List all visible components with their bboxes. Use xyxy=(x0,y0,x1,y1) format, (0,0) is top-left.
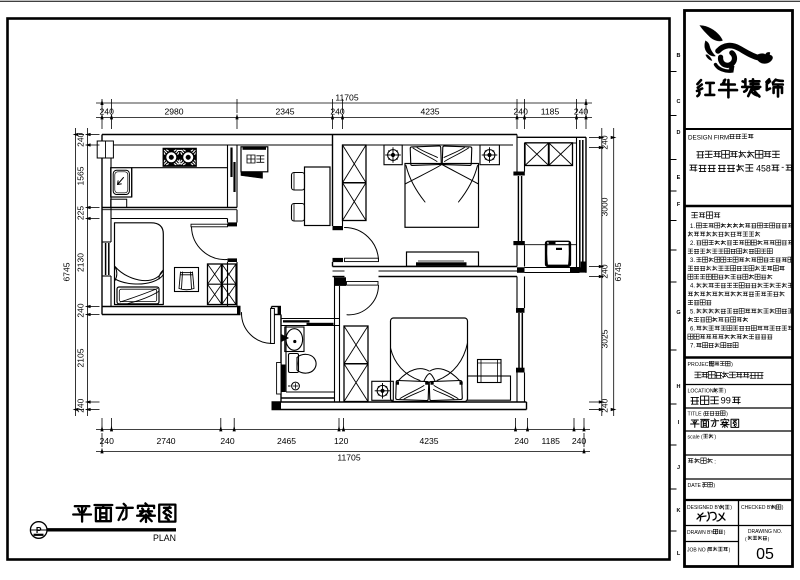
svg-text:6745: 6745 xyxy=(62,262,72,281)
svg-text:J: J xyxy=(677,465,680,471)
svg-text:3.: 3. xyxy=(690,258,695,264)
svg-text:6745: 6745 xyxy=(613,262,623,281)
svg-text:DESIGN FIRM: DESIGN FIRM xyxy=(688,135,729,142)
svg-text:6.: 6. xyxy=(690,326,695,332)
svg-text:240: 240 xyxy=(100,107,115,117)
svg-text:B: B xyxy=(677,53,681,59)
svg-text:3000: 3000 xyxy=(600,197,610,216)
svg-text:05: 05 xyxy=(756,546,774,563)
svg-text:): ) xyxy=(714,435,716,441)
svg-text:): ) xyxy=(713,483,715,489)
svg-text:2130: 2130 xyxy=(76,253,86,272)
svg-text:240: 240 xyxy=(76,303,86,317)
svg-text:D: D xyxy=(677,130,681,136)
svg-text:458: 458 xyxy=(756,164,771,174)
svg-text:G: G xyxy=(676,310,680,316)
svg-text:1565: 1565 xyxy=(76,166,86,185)
svg-text:7.: 7. xyxy=(690,344,695,350)
svg-text:3025: 3025 xyxy=(600,329,610,348)
svg-text:-: - xyxy=(781,162,784,172)
svg-text:4.: 4. xyxy=(690,284,695,290)
svg-text:E: E xyxy=(677,175,681,181)
svg-text:): ) xyxy=(724,389,726,395)
svg-text:DRAWN BY (: DRAWN BY ( xyxy=(687,530,717,536)
svg-text:225: 225 xyxy=(76,206,86,220)
svg-text:): ) xyxy=(726,412,728,418)
svg-text:1185: 1185 xyxy=(541,436,560,446)
svg-text:4235: 4235 xyxy=(420,107,439,117)
svg-text:240: 240 xyxy=(572,436,587,446)
svg-text:2345: 2345 xyxy=(275,107,294,117)
svg-text:JOB NO (: JOB NO ( xyxy=(687,548,709,554)
svg-text:240: 240 xyxy=(514,436,529,446)
svg-text:TITLE (: TITLE ( xyxy=(688,412,706,418)
svg-text:scale (: scale ( xyxy=(688,435,704,441)
svg-text:): ) xyxy=(731,362,733,368)
svg-text:1185: 1185 xyxy=(541,107,560,117)
svg-text:240: 240 xyxy=(330,107,345,117)
svg-text:DRAWING NO.: DRAWING NO. xyxy=(748,529,782,535)
svg-text:LOCATION (: LOCATION ( xyxy=(688,389,718,395)
svg-text:2105: 2105 xyxy=(76,348,86,367)
svg-text:5.: 5. xyxy=(690,309,695,315)
svg-text:11705: 11705 xyxy=(335,93,358,103)
svg-text:240: 240 xyxy=(600,135,610,149)
svg-text:4235: 4235 xyxy=(419,436,438,446)
svg-text:2.: 2. xyxy=(690,241,695,247)
svg-text:240: 240 xyxy=(220,436,235,446)
svg-text:240: 240 xyxy=(600,264,610,278)
svg-text:240: 240 xyxy=(76,132,86,146)
svg-text:K: K xyxy=(677,508,681,514)
svg-text:C: C xyxy=(677,99,681,105)
svg-text:11705: 11705 xyxy=(337,453,360,463)
svg-text:2465: 2465 xyxy=(277,436,296,446)
svg-text:H: H xyxy=(677,384,681,390)
svg-text:PLAN: PLAN xyxy=(153,533,176,543)
svg-text:120: 120 xyxy=(334,436,349,446)
svg-text:PROJECT(: PROJECT( xyxy=(688,362,714,368)
svg-text:2740: 2740 xyxy=(156,436,175,446)
svg-text:240: 240 xyxy=(76,398,86,412)
svg-text:240: 240 xyxy=(100,436,115,446)
svg-text:99: 99 xyxy=(721,396,731,406)
svg-text:1.: 1. xyxy=(690,224,695,230)
svg-text:240: 240 xyxy=(574,107,589,117)
svg-text:DATE (: DATE ( xyxy=(688,483,705,489)
svg-text::: : xyxy=(714,459,716,466)
svg-text:2980: 2980 xyxy=(164,107,183,117)
svg-text:240: 240 xyxy=(514,107,529,117)
svg-text:240: 240 xyxy=(600,398,610,412)
svg-text:DESIGNED BY (: DESIGNED BY ( xyxy=(687,505,724,511)
